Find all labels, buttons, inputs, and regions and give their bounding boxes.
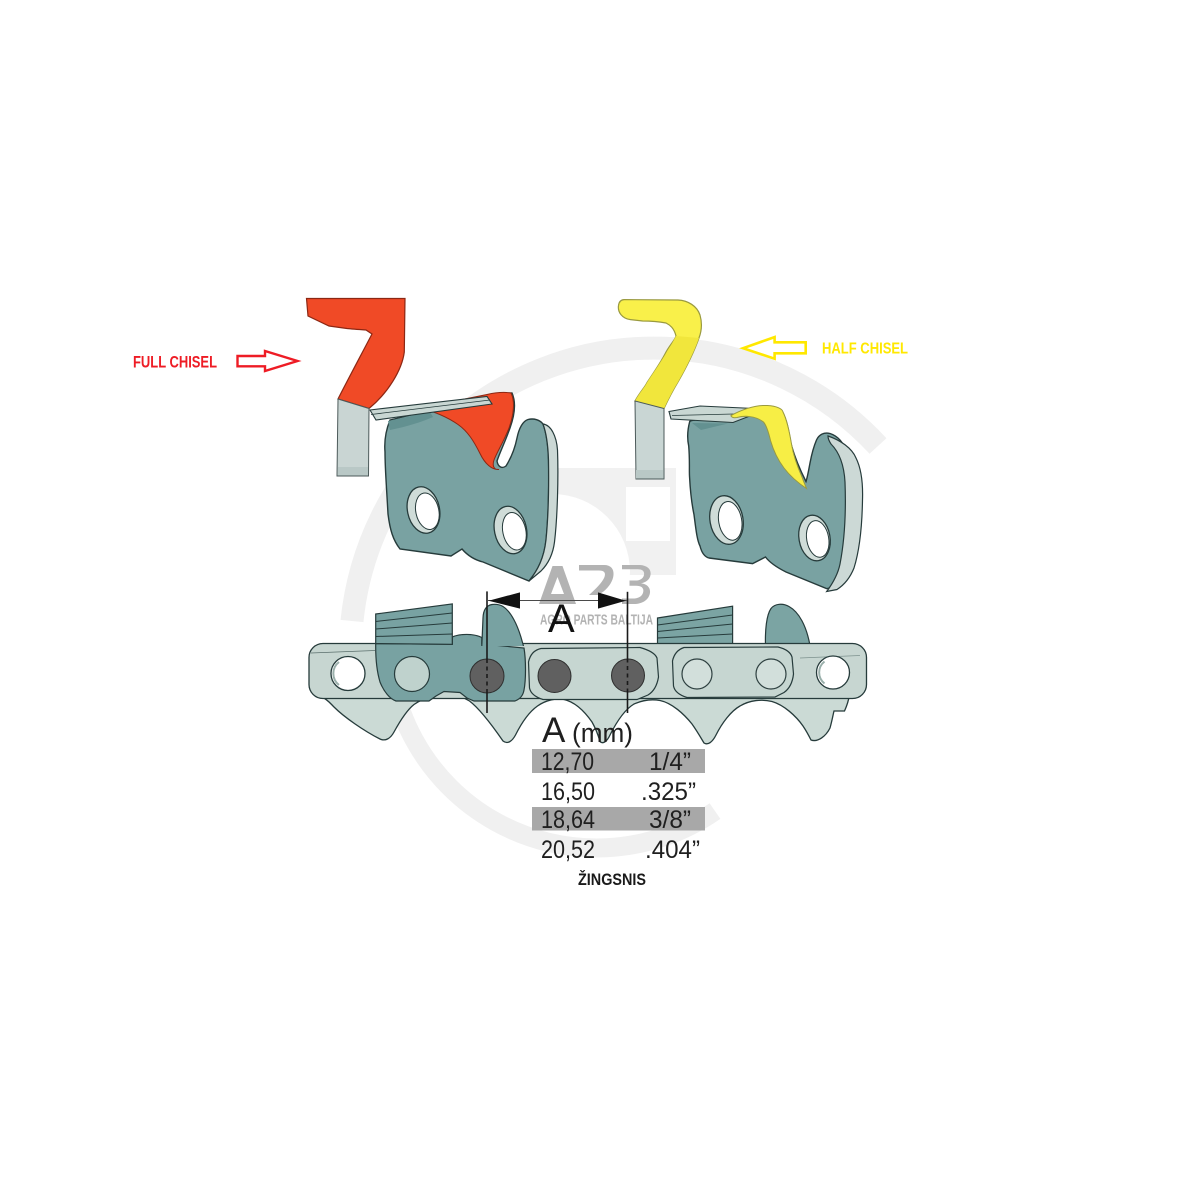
svg-text:A: A [542,711,566,750]
svg-text:FULL CHISEL: FULL CHISEL [133,354,217,372]
svg-text:A: A [548,597,575,641]
svg-text:18,64: 18,64 [541,806,595,834]
svg-text:20,52: 20,52 [541,836,595,864]
svg-text:16,50: 16,50 [541,778,595,806]
svg-text:12,70: 12,70 [541,748,594,776]
svg-text:1/4”: 1/4” [649,748,691,776]
svg-text:ŽINGSNIS: ŽINGSNIS [578,870,646,889]
svg-text:.404”: .404” [645,836,700,864]
svg-text:(mm): (mm) [572,718,633,748]
svg-text:3/8”: 3/8” [649,806,691,834]
svg-text:HALF CHISEL: HALF CHISEL [822,341,908,358]
svg-text:.325”: .325” [641,778,696,806]
